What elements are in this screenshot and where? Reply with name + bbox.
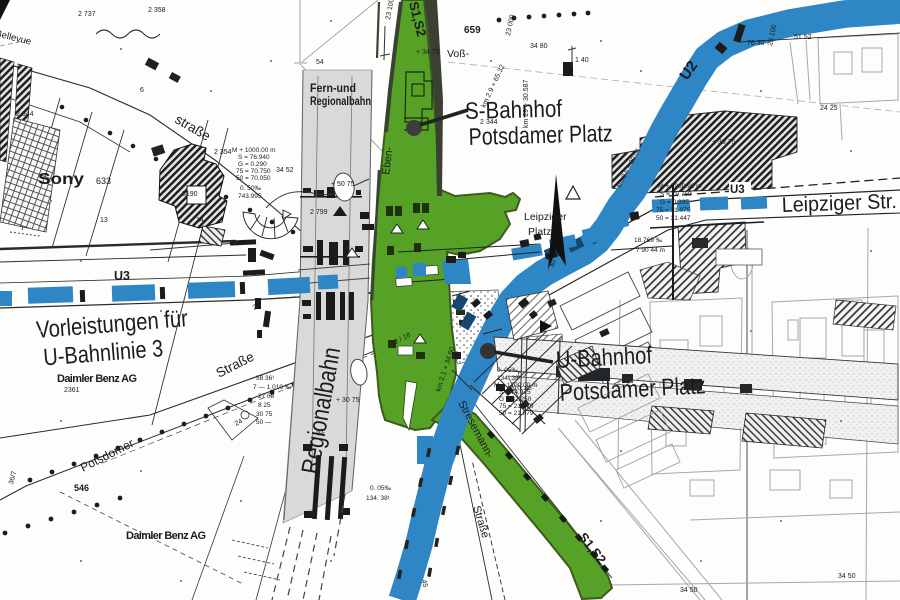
svg-text:km 29 + 30.587: km 29 + 30.587 xyxy=(523,79,530,128)
svg-text:+ 30 75: + 30 75 xyxy=(712,139,736,146)
svg-text:Daimler Benz AG: Daimler Benz AG xyxy=(57,373,137,385)
svg-text:+ 30 75: + 30 75 xyxy=(336,397,360,404)
svg-text:50 = 70.050: 50 = 70.050 xyxy=(236,175,271,182)
svg-text:Voß-: Voß- xyxy=(447,48,470,60)
svg-text:0. 05‰: 0. 05‰ xyxy=(497,367,518,374)
svg-text:27 08: 27 08 xyxy=(258,393,275,400)
svg-text:G = 0.395: G = 0.395 xyxy=(660,199,689,206)
svg-text:51 52: 51 52 xyxy=(794,34,812,41)
svg-text:+ 34 75: + 34 75 xyxy=(416,49,440,56)
svg-text:134. 38¹: 134. 38¹ xyxy=(366,495,391,502)
svg-text:2 344: 2 344 xyxy=(480,119,498,126)
svg-text:Daimler Benz AG: Daimler Benz AG xyxy=(126,530,206,542)
svg-text:8 25: 8 25 xyxy=(258,402,271,409)
svg-text:G = 42.250: G = 42.250 xyxy=(499,396,532,403)
svg-text:Leipziger Str.: Leipziger Str. xyxy=(781,190,897,217)
svg-text:Regionalbahn: Regionalbahn xyxy=(310,94,371,108)
svg-text:24 25: 24 25 xyxy=(820,105,838,112)
svg-text:G = 0.290: G = 0.290 xyxy=(238,161,267,168)
svg-text:7 — 1 010 ‰: 7 — 1 010 ‰ xyxy=(253,384,292,391)
svg-text:30 75: 30 75 xyxy=(256,411,273,418)
svg-text:2 799: 2 799 xyxy=(310,209,328,216)
svg-text:2 358: 2 358 xyxy=(148,7,166,14)
svg-text:659: 659 xyxy=(464,25,481,36)
svg-text:M + 3900.98 m: M + 3900.98 m xyxy=(658,183,702,190)
svg-text:743.995: 743.995 xyxy=(238,193,262,200)
svg-text:6: 6 xyxy=(140,87,144,94)
svg-text:S = 74.975: S = 74.975 xyxy=(499,389,531,396)
svg-text:14: 14 xyxy=(196,217,204,224)
svg-text:M + 1000.00 m: M + 1000.00 m xyxy=(232,147,276,154)
svg-text:34 80: 34 80 xyxy=(530,43,548,50)
svg-text:633: 633 xyxy=(96,176,111,186)
svg-text:S = 79.769: S = 79.769 xyxy=(660,191,692,198)
svg-text:Platz: Platz xyxy=(528,226,551,238)
svg-text:75 = 70.750: 75 = 70.750 xyxy=(236,168,271,175)
svg-text:50 = 31.447: 50 = 31.447 xyxy=(656,215,691,222)
svg-text:+ 50 75: + 50 75 xyxy=(331,181,355,188)
svg-text:Sony: Sony xyxy=(38,171,84,188)
svg-text:50 —: 50 — xyxy=(256,419,272,426)
svg-text:34 50: 34 50 xyxy=(680,587,698,594)
svg-text:34 50: 34 50 xyxy=(838,573,856,580)
svg-text:546: 546 xyxy=(74,483,89,493)
svg-text:0. 50‰: 0. 50‰ xyxy=(240,185,261,192)
svg-text:3190: 3190 xyxy=(182,191,198,198)
svg-text:U-Bahnhof: U-Bahnhof xyxy=(555,342,653,374)
svg-text:2 737: 2 737 xyxy=(78,11,96,18)
svg-text:U3: U3 xyxy=(114,269,130,283)
svg-text:76 30: 76 30 xyxy=(747,40,765,47)
svg-text:45: 45 xyxy=(420,579,428,588)
svg-text:18.769 ‰: 18.769 ‰ xyxy=(634,237,663,244)
svg-text:0. 05‰: 0. 05‰ xyxy=(370,485,391,492)
svg-text:2 354: 2 354 xyxy=(214,149,232,156)
svg-text:7 90 44 m: 7 90 44 m xyxy=(636,247,665,254)
svg-text:75 = 21.979: 75 = 21.979 xyxy=(499,403,534,410)
svg-text:U3: U3 xyxy=(730,184,745,196)
svg-text:134. 38¹: 134. 38¹ xyxy=(497,375,522,382)
svg-text:34 52: 34 52 xyxy=(276,167,294,174)
svg-text:1 40: 1 40 xyxy=(575,57,589,64)
svg-text:54: 54 xyxy=(316,59,324,66)
svg-text:13: 13 xyxy=(100,217,108,224)
svg-text:50 = 21.579: 50 = 21.579 xyxy=(499,410,534,417)
svg-text:Fern-und: Fern-und xyxy=(310,81,356,95)
svg-text:2361: 2361 xyxy=(64,387,80,394)
svg-text:Leipziger: Leipziger xyxy=(524,211,567,223)
svg-text:2 344: 2 344 xyxy=(16,111,34,118)
svg-text:M = 1200.00 m: M = 1200.00 m xyxy=(494,382,538,389)
svg-text:75 = 31.075: 75 = 31.075 xyxy=(656,207,691,214)
svg-text:S = 76.940: S = 76.940 xyxy=(238,154,270,161)
svg-text:58 36¹: 58 36¹ xyxy=(256,375,275,382)
